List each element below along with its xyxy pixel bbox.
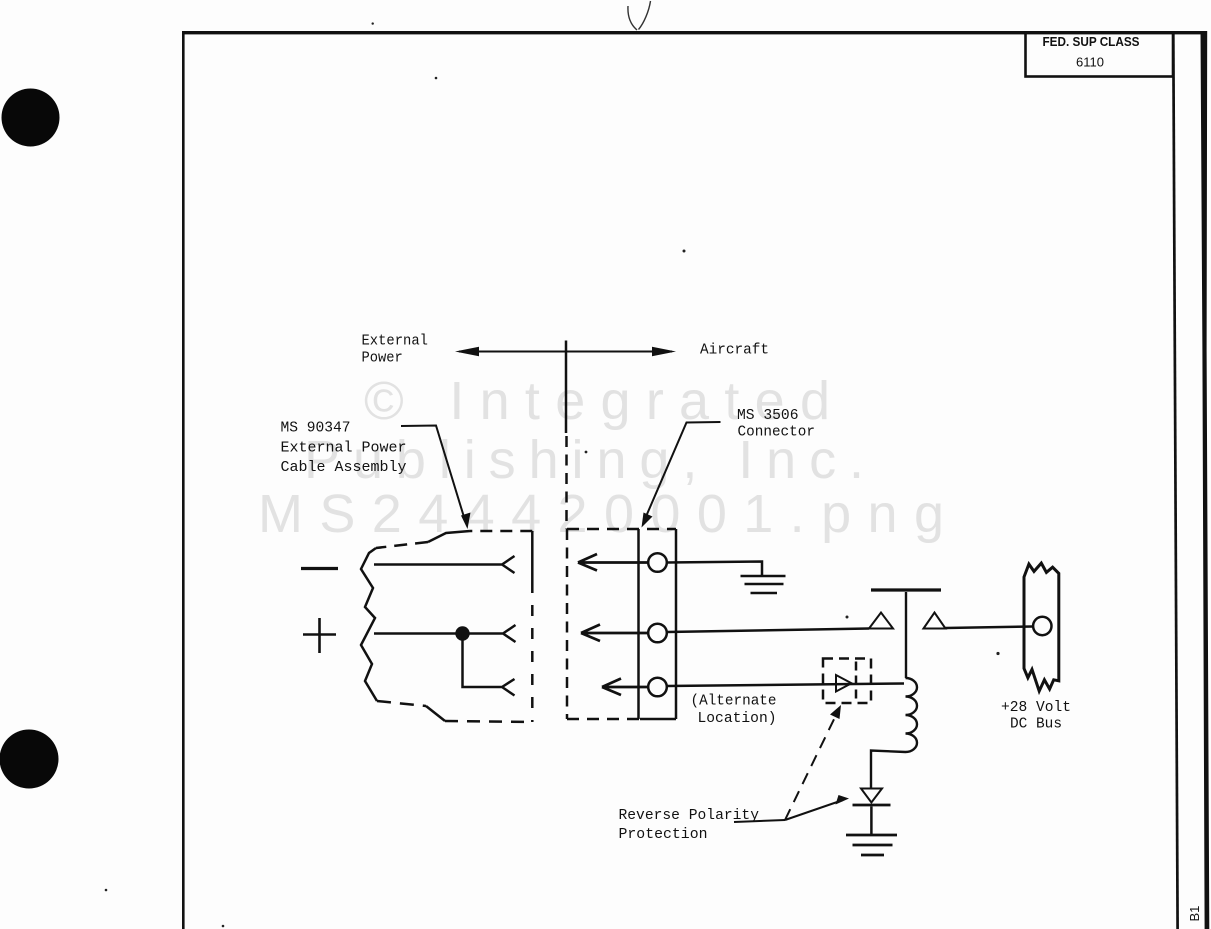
svg-text:Aircraft: Aircraft (700, 342, 769, 359)
svg-text:FED. SUP CLASS: FED. SUP CLASS (1043, 34, 1140, 49)
svg-text:MS244420001.png: MS244420001.png (258, 484, 944, 544)
svg-text:(Alternate: (Alternate (691, 693, 777, 710)
svg-text:DC Bus: DC Bus (1010, 716, 1062, 733)
svg-text:External: External (362, 333, 429, 350)
svg-text:Cable Assembly: Cable Assembly (281, 459, 407, 476)
svg-text:+28 Volt: +28 Volt (1001, 699, 1071, 716)
svg-text:MS 3506: MS 3506 (737, 407, 799, 424)
svg-text:Connector: Connector (738, 424, 816, 441)
svg-text:6110: 6110 (1076, 55, 1104, 70)
svg-text:External Power: External Power (281, 440, 407, 457)
svg-text:Protection: Protection (619, 826, 708, 843)
svg-text:Power: Power (362, 350, 403, 367)
svg-text:MS 90347: MS 90347 (281, 420, 351, 437)
svg-text:Location): Location) (698, 710, 777, 727)
svg-text:B1: B1 (1187, 906, 1202, 922)
